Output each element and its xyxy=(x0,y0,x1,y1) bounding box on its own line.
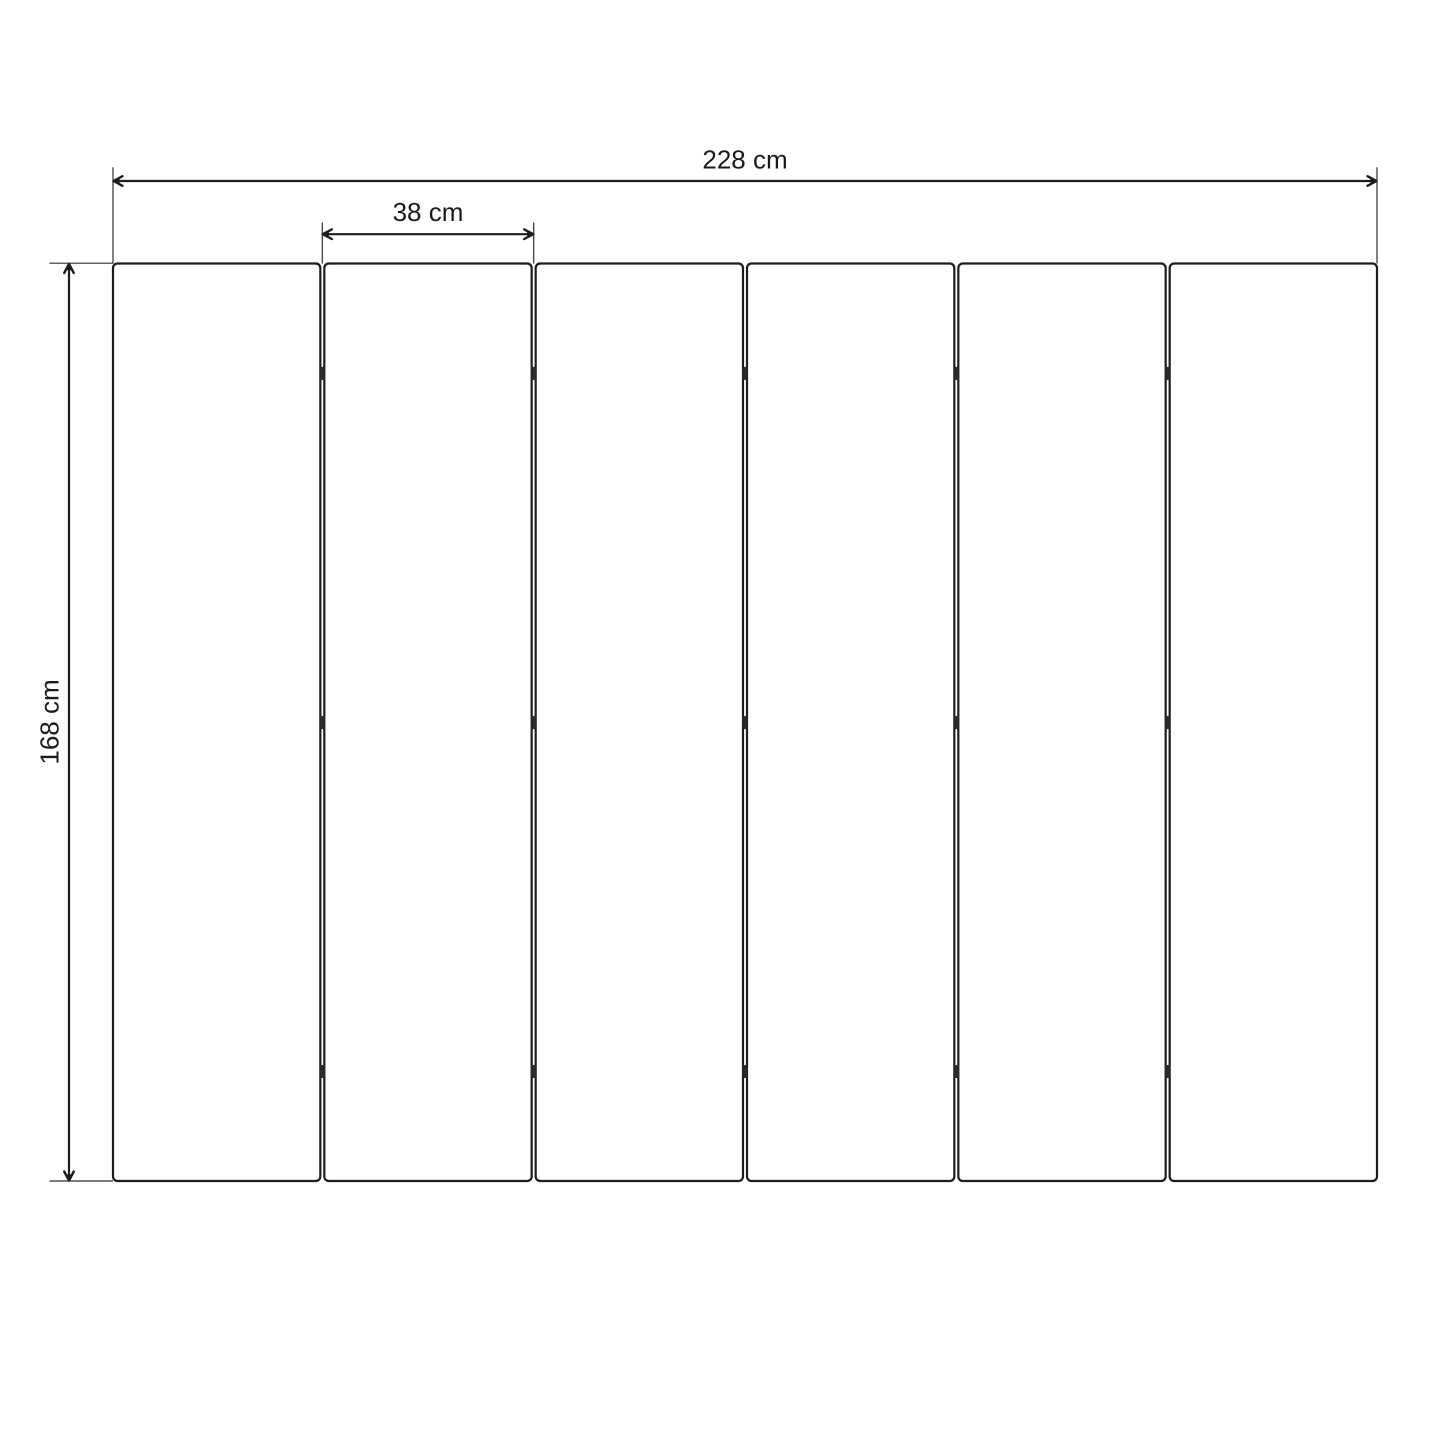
svg-text:168 cm: 168 cm xyxy=(35,679,65,764)
svg-text:38 cm: 38 cm xyxy=(393,197,464,227)
svg-text:228 cm: 228 cm xyxy=(702,145,787,175)
